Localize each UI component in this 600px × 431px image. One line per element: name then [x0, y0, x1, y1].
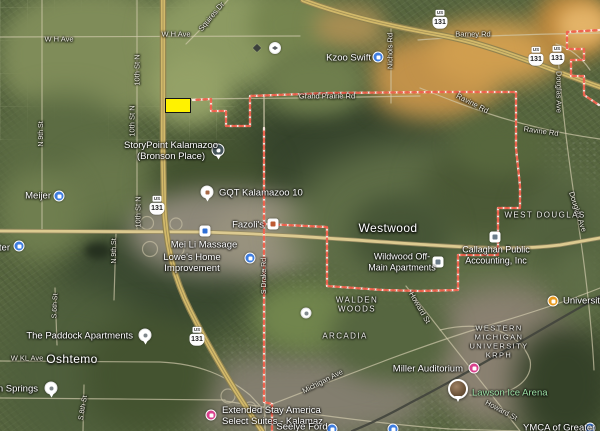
poi-kzoo-swift[interactable]: Kzoo Swift: [326, 52, 371, 63]
road-ravine-rd-1: Ravine Rd: [454, 92, 489, 116]
road-s-6th-st: S 6th St: [51, 293, 61, 318]
us-131-shield-1: US131: [433, 10, 448, 29]
poi-wildwood-off-main[interactable]: Wildwood Off- Main Apartments: [368, 251, 436, 272]
us-131-shield-5: US131: [190, 327, 205, 346]
road-barney-rd: Barney Rd: [455, 31, 490, 40]
road-s-8th-st: S 8th St: [78, 395, 90, 421]
us-route-banner: US: [552, 46, 561, 52]
hood-walden-woods: WALDEN WOODS: [336, 296, 378, 315]
road-10th-st-n-1: 10th St N: [134, 54, 143, 85]
poi-storypoint-kalamazoo[interactable]: StoryPoint Kalamazoo (Bronson Place): [124, 140, 218, 162]
road-10th-st-n-3: 10th St N: [135, 196, 144, 227]
poi-university-cut[interactable]: University Ro: [563, 295, 600, 306]
road-10th-st-n-2: 10th St N: [129, 105, 138, 136]
poi-lawson-ice-arena[interactable]: Lawson Ice Arena: [472, 387, 548, 398]
poi-seelye-ford[interactable]: Seelye Ford: [276, 421, 327, 431]
poi-meijer[interactable]: Meijer: [25, 190, 51, 201]
poi-miller-auditorium[interactable]: Miller Auditorium: [393, 363, 463, 374]
poi-ymca[interactable]: YMCA of Greater: [523, 422, 595, 431]
poi-lowes-home-improvement[interactable]: Lowe's Home Improvement: [163, 252, 220, 274]
road-howard-st-1: Howard St: [406, 291, 431, 326]
road-michigan-ave: Michigan Ave: [301, 368, 345, 396]
road-nichols-rd: Nichols Rd: [387, 33, 396, 69]
hood-western-michigan-university: WESTERN MICHIGAN UNIVERSITY KRPH: [469, 324, 528, 359]
road-s-drake-rd: S Drake Rd: [261, 258, 269, 294]
road-w-h-ave-1: W H Ave: [44, 36, 73, 45]
road-n-9th-st-2: N 9th St: [111, 238, 119, 263]
us-131-shield-2: US131: [529, 47, 544, 66]
road-w-kl-ave: W KL Ave: [11, 355, 44, 364]
us-route-banner: US: [152, 196, 161, 202]
poi-callaghan-accounting[interactable]: Callaghan Public Accounting, Inc: [462, 244, 530, 265]
us-route-banner: US: [435, 10, 444, 16]
road-howard-st-2: Howard St: [483, 399, 518, 423]
hood-arcadia: ARCADIA: [322, 331, 367, 340]
road-w-h-ave-2: W H Ave: [161, 31, 190, 40]
route-number: 131: [550, 52, 565, 64]
route-number: 131: [150, 202, 165, 214]
road-squires-dr: Squires Dr: [197, 1, 227, 34]
hood-west-douglas: WEST DOUGLAS: [504, 210, 585, 219]
poi-tain-springs-cut[interactable]: tain Springs: [0, 383, 38, 394]
route-number: 131: [433, 16, 448, 28]
poi-left-edge-cut[interactable]: ter: [0, 242, 10, 253]
road-ravine-rd-2: Ravine Rd: [523, 125, 559, 139]
place-westwood[interactable]: Westwood: [358, 221, 417, 235]
road-n-9th-st-1: N 9th St: [38, 121, 46, 146]
us-route-banner: US: [531, 47, 540, 53]
poi-fazolis[interactable]: Fazoli's: [232, 219, 264, 230]
route-number: 131: [190, 333, 205, 345]
us-route-banner: US: [192, 327, 201, 333]
poi-mei-li-massage[interactable]: Mei Li Massage: [171, 239, 238, 250]
place-oshtemo[interactable]: Oshtemo: [46, 352, 98, 366]
us-131-shield-3: US131: [550, 46, 565, 65]
us-131-shield-4: US131: [150, 196, 165, 215]
map-labels-layer: US131US131US131US131US131W H AveW H AveS…: [0, 0, 600, 431]
poi-gqt-kalamazoo-10[interactable]: GQT Kalamazoo 10: [219, 187, 303, 198]
road-grand-prairie-rd: Grand Prairie Rd: [299, 93, 355, 102]
route-number: 131: [529, 53, 544, 65]
poi-paddock-apartments[interactable]: The Paddock Apartments: [26, 330, 133, 341]
satellite-map-canvas[interactable]: US131US131US131US131US131W H AveW H AveS…: [0, 0, 600, 431]
road-douglas-ave-1: Douglas Ave: [554, 71, 563, 113]
